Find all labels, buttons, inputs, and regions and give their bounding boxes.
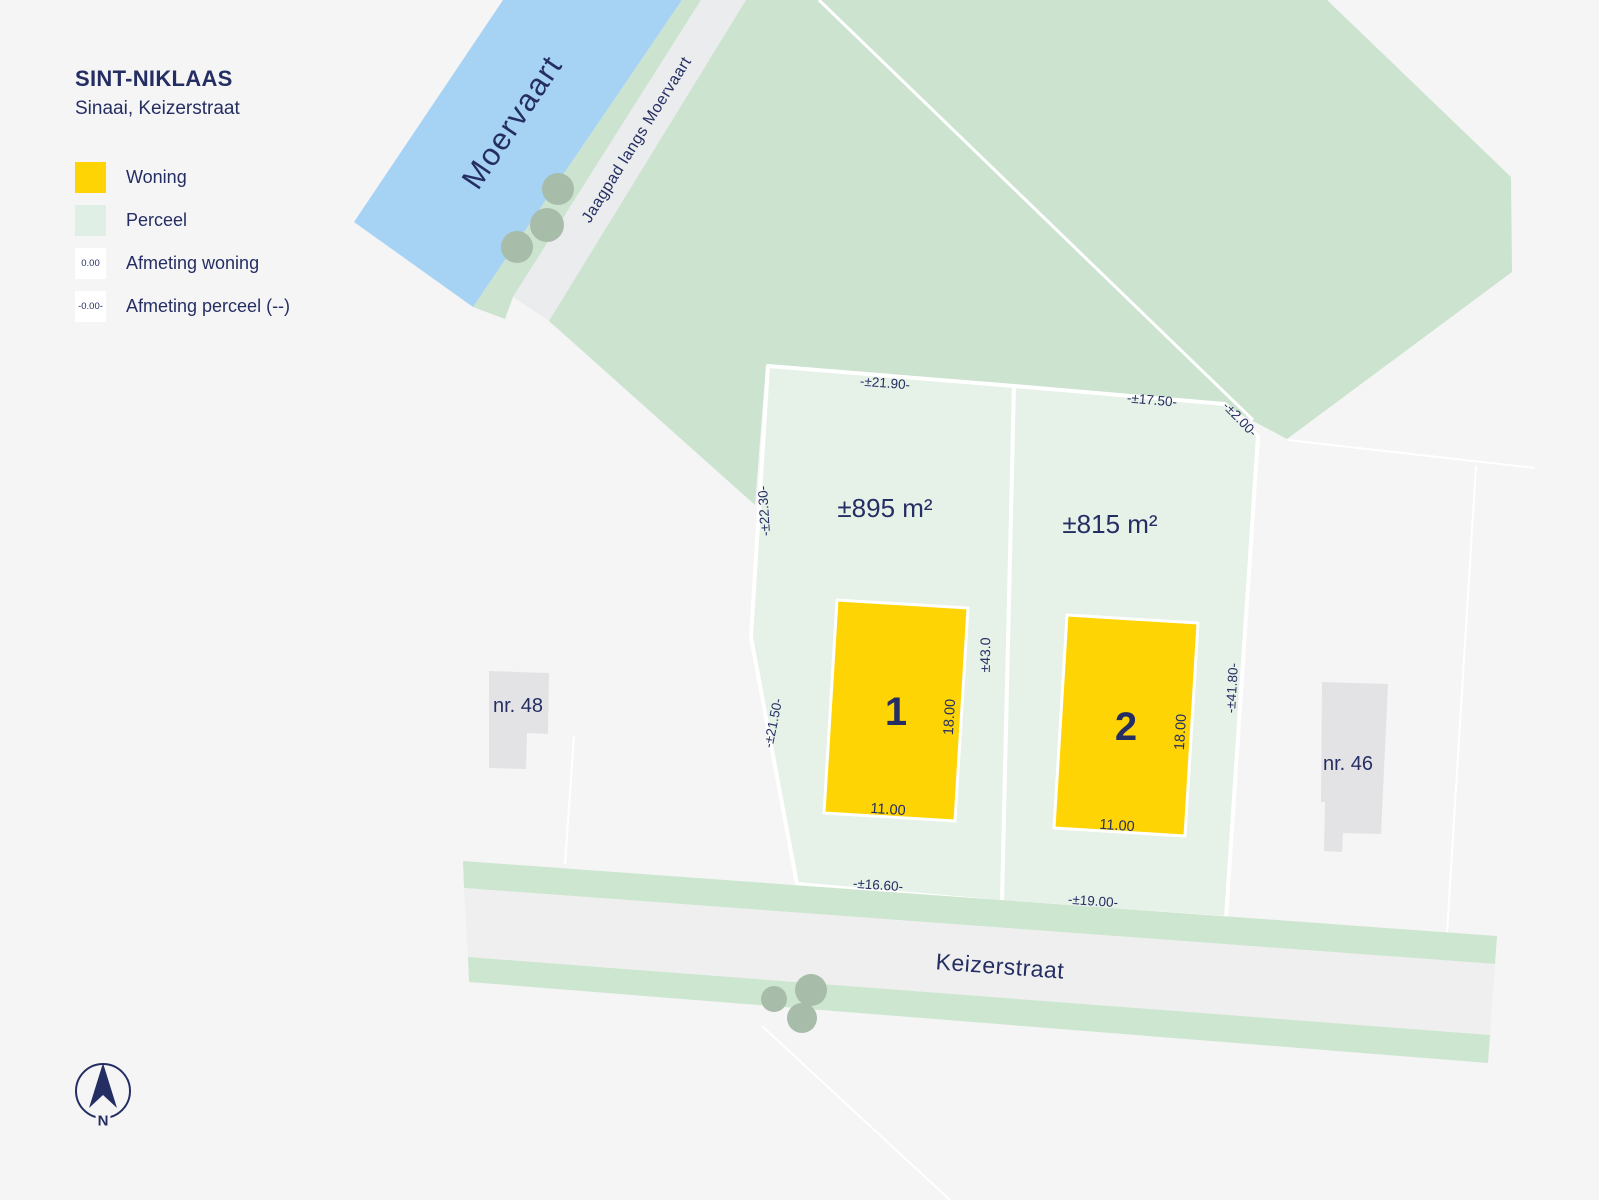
- legend-label: Perceel: [126, 210, 187, 231]
- house-1-number: 1: [885, 690, 907, 734]
- legend-label: Afmeting woning: [126, 253, 259, 274]
- perceel-swatch: [75, 205, 106, 236]
- parcel-boundary-left: [565, 736, 574, 864]
- house-2-width: 11.00: [1099, 817, 1135, 835]
- legend-item-perceel: Perceel: [75, 205, 290, 236]
- woning-swatch: [75, 162, 106, 193]
- tree-icon: [761, 986, 787, 1012]
- parcel-boundary-right-vertical: [1447, 466, 1476, 933]
- parcel-boundary-bottom: [762, 1026, 950, 1200]
- house-2-depth: 18.00: [1172, 713, 1190, 750]
- north-compass-icon: N: [76, 1063, 130, 1130]
- parcel-boundary-right-diagonal: [1287, 440, 1535, 468]
- divider-dim: ±43.0: [977, 637, 994, 672]
- plot-2-dim-right: -±41.80-: [1223, 662, 1241, 713]
- afmeting-woning-swatch: 0.00: [75, 248, 106, 279]
- site-plan: Moervaart Jaagpad langs Moervaart Keizer…: [0, 0, 1599, 1200]
- plot-1-area: ±895 m²: [837, 493, 933, 523]
- neighbor-left-label: nr. 48: [493, 695, 543, 717]
- page-title: SINT-NIKLAAS: [75, 66, 290, 92]
- tree-icon: [542, 173, 574, 205]
- building-nr-48: [489, 671, 549, 769]
- afmeting-woning-sample: 0.00: [81, 258, 100, 269]
- tree-icon: [530, 208, 564, 242]
- north-label: N: [98, 1113, 109, 1130]
- legend: Woning Perceel 0.00 Afmeting woning -0.0…: [75, 162, 290, 322]
- afmeting-perceel-swatch: -0.00-: [75, 291, 106, 322]
- legend-item-afmeting-woning: 0.00 Afmeting woning: [75, 248, 290, 279]
- house-1-depth: 18.00: [941, 698, 959, 735]
- legend-label: Woning: [126, 167, 187, 188]
- legend-item-woning: Woning: [75, 162, 290, 193]
- tree-icon: [795, 974, 827, 1006]
- neighbor-right-label: nr. 46: [1323, 753, 1373, 775]
- plot-2-area: ±815 m²: [1062, 509, 1158, 539]
- info-panel: SINT-NIKLAAS Sinaai, Keizerstraat Woning…: [75, 66, 290, 334]
- house-2-number: 2: [1115, 705, 1137, 749]
- tree-icon: [787, 1003, 817, 1033]
- house-1-width: 11.00: [870, 801, 906, 819]
- legend-label: Afmeting perceel (--): [126, 296, 290, 317]
- page-subtitle: Sinaai, Keizerstraat: [75, 98, 290, 120]
- tree-icon: [501, 231, 533, 263]
- legend-item-afmeting-perceel: -0.00- Afmeting perceel (--): [75, 291, 290, 322]
- plot-1-dim-left-upper: -±22.30-: [755, 485, 773, 536]
- afmeting-perceel-sample: -0.00-: [78, 301, 103, 312]
